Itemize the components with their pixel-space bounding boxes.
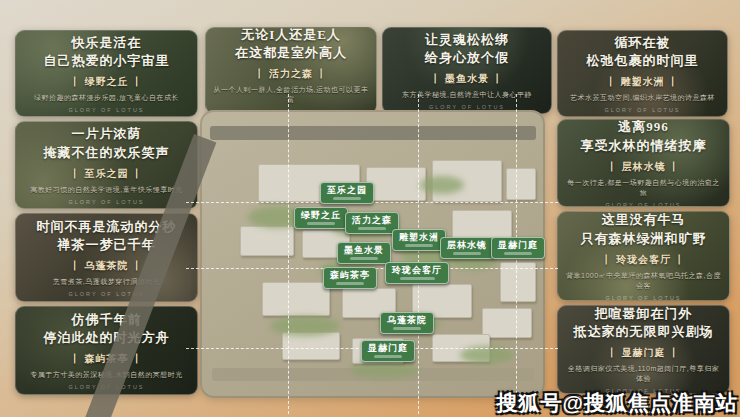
card-title-line1: 一片片浓荫 bbox=[44, 125, 170, 143]
card-place-label: 丨 层林水镜 丨 bbox=[607, 160, 680, 174]
map-dashed-line-vertical bbox=[418, 94, 419, 414]
brand-line: GLORY OF LOTUS bbox=[68, 107, 144, 113]
card-title-line2: 抵达家的无限即兴剧场 bbox=[574, 323, 714, 341]
card-title-line1: 逃离996 bbox=[581, 119, 707, 137]
card-title-line1: 让灵魂松松绑 bbox=[425, 31, 509, 49]
card-title-line2: 给身心放个假 bbox=[425, 49, 509, 67]
map-badge-label: 至乐之园 bbox=[327, 185, 367, 195]
card-title: 仿佛千年前 停泊此处的时光方舟 bbox=[44, 311, 170, 347]
card-place-label: 丨 至乐之园 丨 bbox=[70, 167, 143, 181]
card-title-line2: 只有森林绿洲和旷野 bbox=[581, 230, 707, 248]
map-greenery bbox=[420, 176, 464, 194]
card-title-line2: 停泊此处的时光方舟 bbox=[44, 329, 170, 347]
brand-line: GLORY OF LOTUS bbox=[605, 202, 681, 207]
map-badge-label: 雕塑水洲 bbox=[399, 232, 439, 242]
brand-line: GLORY OF LOTUS bbox=[68, 199, 144, 205]
map-building bbox=[366, 167, 426, 201]
map-badge-label: 显赫门庭 bbox=[368, 343, 408, 353]
card-description: 每一次行走,都是一场野趣自然与心境的治愈之旅 bbox=[565, 178, 722, 198]
map-badge-label: 墨鱼水景 bbox=[344, 245, 384, 255]
map-badge-label: 森屿茶亭 bbox=[330, 270, 370, 280]
card-place-label: 丨 玲珑会客厅 丨 bbox=[602, 253, 686, 267]
map-badge-grand-gate-east: 显赫门庭 bbox=[491, 237, 545, 259]
callout-card-vitality-forest: 无论I人还是E人 在这都是室外高人 丨 活力之森 丨 从一个人到一群人,全龄活力… bbox=[205, 27, 377, 114]
map-badge-subline bbox=[307, 222, 335, 225]
map-badge-subline bbox=[400, 277, 435, 280]
card-description: 东方美学秘境,自然诗意中让人身心平静 bbox=[402, 90, 532, 100]
map-badge-reception-hall: 玲珑会客厅 bbox=[385, 262, 449, 284]
map-badge-vitality-forest: 活力之森 bbox=[345, 212, 399, 234]
card-description: 从一个人到一群人,全龄活力场,运动也可以更丰富 bbox=[213, 85, 369, 105]
card-place-label: 丨 雕塑水洲 丨 bbox=[606, 75, 679, 89]
map-badge-water-mirror: 层林水镜 bbox=[440, 237, 494, 259]
callout-card-reception-hall: 这里没有牛马 只有森林绿洲和旷野 丨 玲珑会客厅 丨 背靠1000㎡中央草坪的森… bbox=[557, 211, 730, 301]
map-badge-subline bbox=[393, 327, 421, 330]
site-plan-map: 至乐之园 绿野之丘 活力之森 雕塑水洲 墨鱼水景 层林水镜 显赫门庭 玲珑会客厅… bbox=[200, 110, 545, 398]
map-badge-label: 层林水镜 bbox=[447, 240, 487, 250]
map-badge-subline bbox=[504, 252, 532, 255]
card-title-line1: 这里没有牛马 bbox=[581, 211, 707, 229]
card-title-line2: 自己热爱的小宇宙里 bbox=[44, 52, 170, 70]
card-title-line1: 无论I人还是E人 bbox=[235, 27, 347, 44]
callout-card-water-mirror: 逃离996 享受水林的情绪按摩 丨 层林水镜 丨 每一次行走,都是一场野趣自然与… bbox=[557, 119, 730, 207]
card-title: 这里没有牛马 只有森林绿洲和旷野 bbox=[581, 211, 707, 247]
poster-canvas: 快乐是活在 自己热爱的小宇宙里 丨 绿野之丘 丨 绿野拾趣的森林漫步乐园,放飞童… bbox=[0, 0, 740, 417]
card-description: 寓教好习惯的自然美学语境,童年快乐慢享时光 bbox=[30, 185, 182, 195]
card-title: 循环在被 松弛包裹的时间里 bbox=[587, 34, 699, 70]
map-badge-tea-court: 乌蓬茶院 bbox=[380, 312, 434, 334]
card-place-label: 丨 绿野之丘 丨 bbox=[70, 75, 143, 89]
map-badge-label: 乌蓬茶院 bbox=[387, 315, 427, 325]
callout-card-lvye-hill: 快乐是活在 自己热爱的小宇宙里 丨 绿野之丘 丨 绿野拾趣的森林漫步乐园,放飞童… bbox=[15, 30, 198, 117]
card-title-line2: 在这都是室外高人 bbox=[235, 44, 347, 62]
callout-card-ink-water: 让灵魂松松绑 给身心放个假 丨 墨鱼水景 丨 东方美学秘境,自然诗意中让人身心平… bbox=[382, 27, 552, 114]
card-title: 逃离996 享受水林的情绪按摩 bbox=[581, 119, 707, 155]
card-title: 把喧嚣卸在门外 抵达家的无限即兴剧场 bbox=[574, 305, 714, 341]
map-greenery bbox=[270, 316, 340, 336]
map-building bbox=[506, 168, 536, 200]
map-badge-joy-garden: 至乐之园 bbox=[320, 182, 374, 204]
map-badge-label: 绿野之丘 bbox=[301, 210, 341, 220]
map-badge-subline bbox=[374, 355, 402, 358]
card-place-label: 丨 墨鱼水景 丨 bbox=[431, 72, 504, 86]
card-place-label: 丨 活力之森 丨 bbox=[255, 67, 328, 81]
brand-line: GLORY OF LOTUS bbox=[605, 295, 681, 301]
card-title-line1: 循环在被 bbox=[587, 34, 699, 52]
map-badge-subline bbox=[358, 227, 386, 230]
card-title-line1: 把喧嚣卸在门外 bbox=[574, 305, 714, 323]
map-badge-ink-water: 墨鱼水景 bbox=[337, 242, 391, 264]
map-badge-label: 活力之森 bbox=[352, 215, 392, 225]
card-title: 让灵魂松松绑 给身心放个假 bbox=[425, 31, 509, 67]
map-building bbox=[262, 282, 330, 316]
callout-card-grand-gate: 把喧嚣卸在门外 抵达家的无限即兴剧场 丨 显赫门庭 丨 全格调归家仪式美境,11… bbox=[557, 305, 730, 394]
map-badge-sculpture-isle: 雕塑水洲 bbox=[392, 229, 446, 251]
map-badge-tea-pavilion: 森屿茶亭 bbox=[323, 267, 377, 289]
card-title-line2: 松弛包裹的时间里 bbox=[587, 52, 699, 70]
card-place-label: 丨 乌蓬茶院 丨 bbox=[70, 259, 143, 273]
map-road-top bbox=[210, 126, 536, 140]
card-description: 艺术水景互动空间,编织水岸艺境的诗意森林 bbox=[570, 93, 715, 103]
map-building bbox=[482, 308, 532, 338]
card-description: 绿野拾趣的森林漫步乐园,放飞童心自在成长 bbox=[34, 93, 179, 103]
card-description: 背靠1000㎡中央草坪的森林氧吧乌托之森,合度会客 bbox=[565, 271, 722, 291]
map-badge-subline bbox=[453, 252, 481, 255]
card-title: 无论I人还是E人 在这都是室外高人 bbox=[235, 27, 347, 62]
map-badge-subline bbox=[350, 257, 378, 260]
map-building bbox=[282, 332, 340, 360]
map-badge-lvye-hill: 绿野之丘 bbox=[294, 207, 348, 229]
callout-card-sculpture-isle: 循环在被 松弛包裹的时间里 丨 雕塑水洲 丨 艺术水景互动空间,编织水岸艺境的诗… bbox=[557, 30, 728, 117]
card-description: 全格调归家仪式美境,110m超阔门厅,尊享归家体验 bbox=[565, 364, 722, 384]
card-title-line2: 享受水林的情绪按摩 bbox=[581, 137, 707, 155]
map-badge-subline bbox=[405, 244, 433, 247]
map-badge-label: 玲珑会客厅 bbox=[392, 265, 442, 275]
card-place-label: 丨 显赫门庭 丨 bbox=[607, 346, 680, 360]
card-title: 一片片浓荫 掩藏不住的欢乐笑声 bbox=[44, 125, 170, 161]
map-dashed-line-vertical bbox=[288, 94, 289, 414]
map-badge-subline bbox=[336, 282, 364, 285]
map-building bbox=[240, 226, 294, 256]
map-badge-label: 显赫门庭 bbox=[498, 240, 538, 250]
map-badge-subline bbox=[333, 197, 361, 200]
watermark-sohu: 搜狐号@搜狐焦点淮南站 bbox=[497, 389, 738, 417]
brand-line: GLORY OF LOTUS bbox=[604, 107, 680, 113]
map-badge-grand-gate-south: 显赫门庭 bbox=[361, 340, 415, 362]
card-title-line1: 快乐是活在 bbox=[44, 34, 170, 52]
card-title-line2: 掩藏不住的欢乐笑声 bbox=[44, 144, 170, 162]
map-greenery bbox=[350, 362, 420, 378]
card-title: 快乐是活在 自己热爱的小宇宙里 bbox=[44, 34, 170, 70]
